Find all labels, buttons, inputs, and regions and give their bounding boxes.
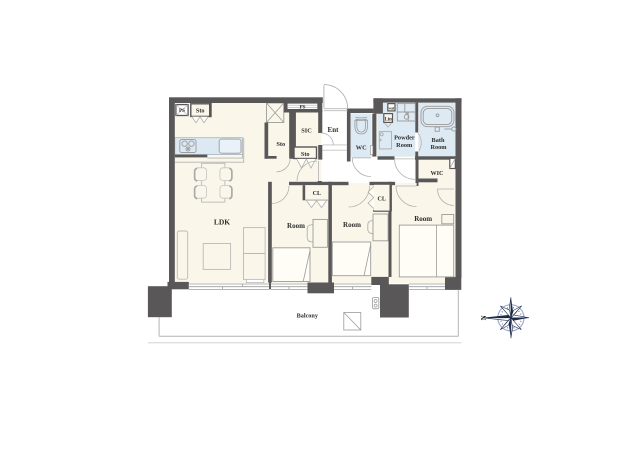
svg-text:N: N	[480, 315, 488, 320]
svg-text:CL: CL	[378, 196, 386, 202]
svg-text:WIC: WIC	[430, 170, 443, 177]
svg-text:Ent: Ent	[328, 126, 340, 134]
svg-text:Powder: Powder	[394, 134, 415, 141]
svg-text:Room: Room	[396, 142, 413, 149]
svg-text:Balcony: Balcony	[297, 313, 319, 320]
svg-text:LDK: LDK	[214, 217, 230, 226]
svg-text:Room: Room	[430, 144, 447, 151]
svg-text:Room: Room	[343, 221, 361, 229]
svg-text:Bath: Bath	[432, 137, 445, 144]
svg-text:SIC: SIC	[301, 127, 312, 134]
svg-text:Sto: Sto	[196, 107, 205, 114]
svg-text:PS: PS	[299, 104, 305, 110]
svg-text:WC: WC	[356, 144, 367, 151]
svg-text:PS: PS	[179, 108, 185, 114]
svg-text:Sto: Sto	[301, 151, 310, 158]
svg-text:Room: Room	[414, 215, 432, 223]
svg-text:wat: wat	[388, 106, 395, 110]
svg-text:Sto: Sto	[276, 141, 285, 148]
svg-text:CL: CL	[313, 191, 321, 197]
svg-text:Room: Room	[287, 222, 305, 230]
svg-text:Lin: Lin	[385, 117, 393, 122]
